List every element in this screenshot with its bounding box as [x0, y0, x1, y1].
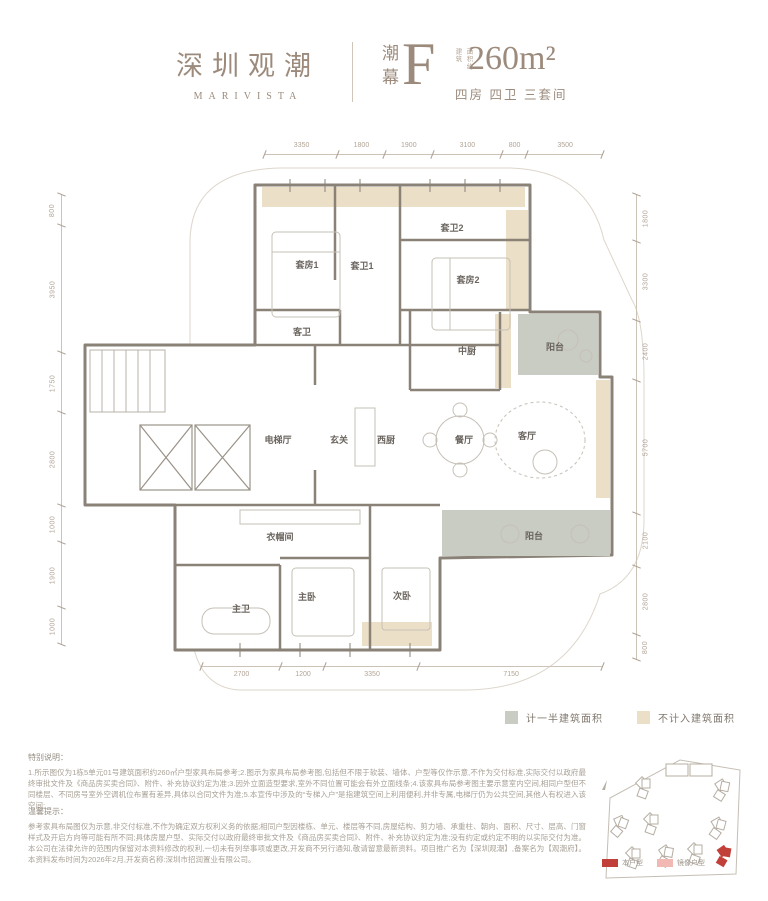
room-label-cloakroom: 衣帽间	[266, 531, 293, 542]
dim-value: 800	[509, 142, 521, 160]
floorplan: 套房1 套卫1 套卫2 套房2 客卫 中厨 阳台 电梯厅 玄关 西厨 餐厅 客厅…	[40, 140, 680, 715]
dim-segment: 1000	[48, 506, 66, 543]
dim-value: 1900	[401, 142, 417, 160]
room-label-master-bath: 主卫	[232, 603, 250, 614]
brand-name-cn: 深圳观潮	[176, 44, 320, 83]
dim-value: 800	[642, 641, 649, 654]
dim-value: 5700	[642, 439, 649, 457]
room-label-second-bedroom: 次卧	[393, 590, 411, 601]
dim-value: 1800	[642, 210, 649, 228]
tips-note: 温馨提示： 参考家具布局图仅为示意,非交付标准,不作为确定双方权利义务的依据;相…	[28, 806, 586, 865]
mirror-unit-swatch	[657, 859, 673, 867]
site-buildings	[608, 764, 730, 869]
unit-layout-desc: 四房 四卫 三套间	[455, 84, 567, 103]
mirror-unit-label: 镜像户型	[677, 858, 705, 868]
excluded-area-swatch	[637, 711, 650, 724]
dim-segment: 800	[502, 142, 527, 160]
dim-chain-bottom: 2700 1200 3350 7150	[202, 662, 603, 680]
room-label-guest-bath: 客卫	[292, 326, 311, 337]
building-outline	[85, 185, 612, 650]
room-label-west-kitchen: 西厨	[377, 435, 395, 445]
brand-block: 深圳观潮 MARIVISTA	[176, 44, 320, 102]
dim-segment: 800	[48, 195, 66, 226]
unit-area: 260m²	[468, 40, 556, 78]
dim-segment: 3950	[48, 226, 66, 353]
dim-value: 2700	[234, 671, 250, 680]
room-label-master-bedroom: 主卧	[298, 591, 316, 602]
room-label-suite1: 套房1	[295, 259, 318, 270]
room-label-balcony-bottom: 阳台	[525, 530, 543, 541]
room-label-chinese-kitchen: 中厨	[458, 345, 476, 356]
area-prefix-col1: 建筑	[452, 48, 462, 71]
dim-chain-right: 1800 3300 2400 5700 2100 2800 800	[632, 195, 650, 660]
dim-segment: 3100	[433, 142, 502, 160]
dim-segment: 7150	[419, 662, 603, 680]
half-area-swatch	[505, 711, 518, 724]
header-divider	[352, 42, 353, 102]
north-arrow-icon	[602, 780, 607, 790]
dim-value: 1000	[49, 618, 56, 636]
room-label-dining: 餐厅	[454, 434, 473, 445]
legend-item-excluded-area: 不计入建筑面积	[637, 710, 735, 725]
dim-segment: 3350	[265, 142, 338, 160]
room-label-foyer: 玄关	[330, 434, 348, 445]
dim-value: 800	[49, 204, 56, 217]
dim-value: 2100	[642, 531, 649, 549]
dim-segment: 1900	[385, 142, 433, 160]
dim-segment: 2700	[202, 662, 281, 680]
dim-segment: 1800	[632, 195, 650, 242]
dim-value: 2800	[49, 451, 56, 469]
dim-segment: 1000	[48, 608, 66, 645]
room-label-balcony-top: 阳台	[546, 341, 564, 352]
dim-segment: 1750	[48, 353, 66, 413]
site-legend-this-unit: 本户型	[602, 858, 643, 868]
dim-segment: 1800	[338, 142, 385, 160]
tips-note-body: 参考家具布局图仅为示意,非交付标准,不作为确定双方权利义务的依据;相同户型因楼栋…	[28, 821, 586, 865]
tips-note-title: 温馨提示：	[28, 806, 586, 817]
dim-segment: 1200	[281, 662, 325, 680]
dim-segment: 2800	[48, 413, 66, 505]
room-label-suite-bath2: 套卫2	[440, 222, 463, 233]
site-legend-mirror-unit: 镜像户型	[657, 858, 705, 868]
dim-value: 3300	[642, 273, 649, 291]
brand-name-en: MARIVISTA	[176, 91, 320, 102]
dim-value: 1200	[295, 671, 311, 680]
unit-letter: F	[402, 30, 435, 99]
dim-segment: 2400	[632, 321, 650, 381]
dim-segment: 2100	[632, 514, 650, 567]
unit-series-label: 潮幕	[376, 44, 401, 92]
dim-value: 3350	[294, 142, 310, 160]
room-label-suite-bath1: 套卫1	[350, 260, 373, 271]
special-note-title: 特别说明：	[28, 752, 586, 763]
dim-value: 3350	[364, 671, 380, 680]
room-label-suite2: 套房2	[456, 274, 479, 285]
siteplan: 本户型 镜像户型	[580, 746, 760, 896]
site-legend: 本户型 镜像户型	[602, 858, 705, 868]
floorplan-page: { "header": { "brand_cn": "深圳观潮", "brand…	[0, 0, 768, 899]
dim-segment: 3350	[325, 662, 419, 680]
dim-value: 1900	[49, 566, 56, 584]
dim-value: 1800	[354, 142, 370, 160]
dim-value: 3500	[557, 142, 573, 160]
dim-segment: 3500	[527, 142, 603, 160]
legend-item-half-area: 计一半建筑面积	[505, 710, 603, 725]
this-unit-label: 本户型	[622, 858, 643, 868]
dim-value: 2400	[642, 342, 649, 360]
dim-segment: 1900	[48, 543, 66, 608]
dim-segment: 800	[632, 635, 650, 660]
this-unit-swatch	[602, 859, 618, 867]
room-label-elevator-hall: 电梯厅	[264, 434, 291, 445]
dim-value: 3100	[460, 142, 476, 160]
dim-chain-top: 3350 1800 1900 3100 800 3500	[265, 142, 603, 160]
dim-value: 7150	[503, 671, 519, 680]
floorplan-drawing: 套房1 套卫1 套卫2 套房2 客卫 中厨 阳台 电梯厅 玄关 西厨 餐厅 客厅…	[40, 140, 680, 715]
dim-segment: 5700	[632, 381, 650, 513]
dim-value: 3950	[49, 281, 56, 299]
dim-chain-left: 800 3950 1750 2800 1000 1900 1000	[48, 195, 66, 645]
dim-value: 1000	[49, 515, 56, 533]
special-note-body: 1.所示图仅为1栋5单元01号建筑面积约260㎡户型家具布局参考;2.图示为家具…	[28, 767, 586, 811]
site-building-highlighted	[714, 844, 732, 868]
dim-value: 2800	[642, 592, 649, 610]
room-label-living: 客厅	[517, 430, 536, 441]
excluded-area-label: 不计入建筑面积	[658, 710, 735, 725]
special-note: 特别说明： 1.所示图仅为1栋5单元01号建筑面积约260㎡户型家具布局参考;2…	[28, 752, 586, 811]
siteplan-map	[580, 746, 760, 896]
dim-value: 1750	[49, 375, 56, 393]
dim-segment: 3300	[632, 242, 650, 322]
dim-segment: 2800	[632, 567, 650, 636]
area-legend: 计一半建筑面积 不计入建筑面积	[505, 710, 735, 725]
half-area-label: 计一半建筑面积	[526, 710, 603, 725]
